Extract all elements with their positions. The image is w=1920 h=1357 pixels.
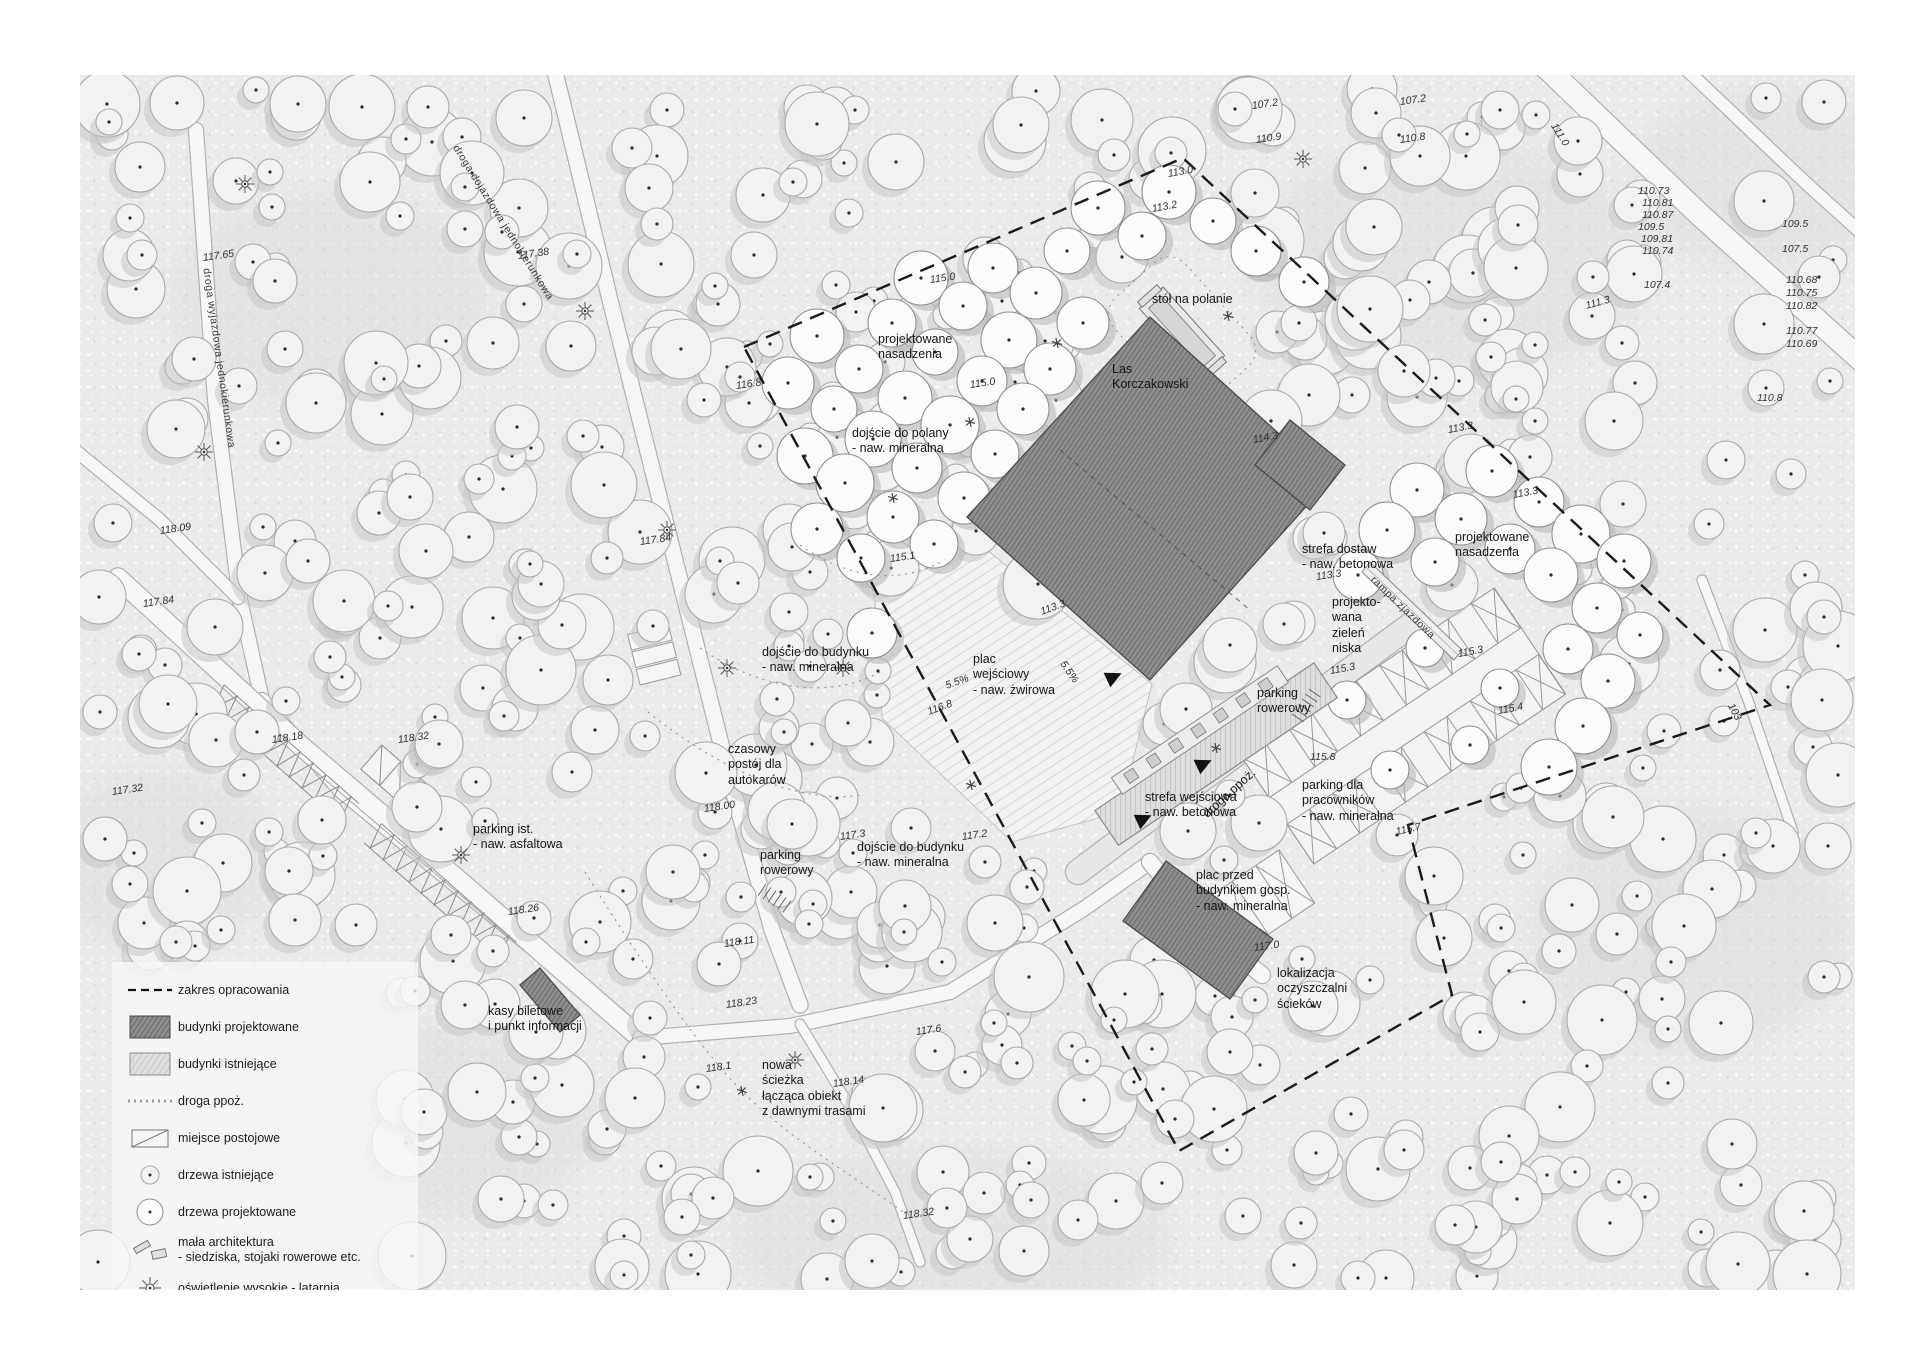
elevation-label: 103 [1724,701,1744,722]
legend-item-label: miejsce postojowe [178,1131,280,1146]
elevation-label: 117.65 [202,248,235,265]
annotation-label: projektowane nasadzenia [878,332,952,363]
elevation-label: 111.0 [1548,121,1572,149]
annotation-label: parking rowerowy [760,848,814,879]
elevation-label: 118.1 [705,1060,732,1076]
elevation-label: 110.82 [1786,300,1817,313]
annotation-label: droga wyjazdowa jednokierunkowa [200,268,238,449]
elevation-label: 115.3 [1457,644,1484,661]
annotation-label: plac przed budynkiem gosp. - naw. minera… [1196,868,1291,914]
elevation-label: 115.0 [929,271,956,287]
elevation-label: 107.2 [1251,96,1279,112]
legend: zakres opracowaniabudynki projektowanebu… [112,962,418,1290]
elevation-label: 109.5 [1782,218,1808,231]
street-furniture-icon [126,1236,178,1264]
annotation-label: strefa dostaw - naw. betonowa [1302,542,1393,573]
annotation-label: dojście do budynku - naw. mineralna [857,840,964,871]
legend-item: drzewa projektowane [126,1198,404,1226]
annotation-label: plac wejściowy - naw. żwirowa [973,652,1055,698]
annotation-label: stół na polanie [1152,292,1233,307]
boundary-dashed-line-icon [126,976,178,1004]
elevation-label: 114.3 [1252,430,1279,447]
fire-road-line-icon [126,1087,178,1115]
elevation-label: 110.73 [1638,185,1669,198]
annotation-label: projekto- wana zieleń niska [1332,595,1381,656]
elevation-label: 115.1 [889,550,916,566]
elevation-label: 110.77 [1786,325,1817,338]
annotation-label: kasy biletowe i punkt informacji [488,1004,582,1035]
elevation-label: 118.18 [271,730,304,747]
elevation-label: 107.2 [1399,92,1427,108]
elevation-label: 118.32 [902,1206,935,1223]
elevation-label: 110.75 [1786,287,1817,300]
annotation-label: parking dla pracowników - naw. mineralna [1302,778,1394,824]
elevation-label: 113.3 [1512,485,1539,502]
elevation-label: 117.84 [142,594,175,611]
elevation-label: 113.3 [1039,598,1067,619]
annotation-label: nowa ścieżka łącząca obiekt z dawnymi tr… [762,1058,866,1119]
elevation-label: 110.87 [1642,209,1673,222]
elevation-label: 113.3 [1447,420,1474,437]
elevation-label: 107.4 [1644,279,1670,292]
legend-item: budynki projektowane [126,1013,404,1041]
annotation-label: lokalizacja oczyszczalni ścieków [1277,966,1347,1012]
elevation-label: 113.0 [1167,164,1194,181]
elevation-label: 117.32 [111,782,144,799]
elevation-label: 118.32 [397,730,430,747]
elevation-label: 107.5 [1782,243,1808,256]
elevation-label: 117.2 [961,828,988,844]
elevation-label: 116.8 [926,698,954,719]
elevation-label: 5.5% [1057,659,1081,686]
elevation-label: 115.8 [1310,751,1336,764]
legend-item: miejsce postojowe [126,1124,404,1152]
annotation-label: projektowane nasadzenia [1455,530,1529,561]
annotation-label: dojście do budynku - naw. mineralna [762,645,869,676]
legend-item: droga ppoż. [126,1087,404,1115]
legend-item: zakres opracowania [126,976,404,1004]
annotation-label: parking rowerowy [1257,686,1311,717]
elevation-label: 118.26 [507,902,540,919]
elevation-label: 109.5 [1638,221,1664,234]
elevation-label: 110.74 [1642,245,1673,258]
legend-item-label: drzewa istniejące [178,1168,274,1183]
legend-item-label: zakres opracowania [178,983,289,998]
elevation-label: 117.6 [915,1023,942,1039]
elevation-label: 115.7 [1395,821,1423,839]
elevation-label: 117.0 [1253,939,1280,955]
elevation-label: 115.0 [969,376,996,392]
legend-item-label: droga ppoż. [178,1094,244,1109]
elevation-label: 115.4 [1497,701,1524,718]
elevation-label: 117.38 [517,246,550,263]
elevation-label: 111.3 [1584,294,1611,313]
elevation-label: 118.00 [703,799,736,816]
legend-item: drzewa istniejące [126,1161,404,1189]
annotation-label: droga dojazdowa jednokierunkowa [450,143,556,303]
elevation-label: 110.69 [1786,338,1817,351]
parking-space-icon [126,1124,178,1152]
elevation-label: 117.84 [639,532,672,549]
legend-item-label: oświetlenie wysokie - latarnia [178,1281,340,1291]
elevation-label: 5.5% [944,672,971,692]
annotation-label: parking ist. - naw. asfaltowa [473,822,563,853]
elevation-label: 113.3 [1315,568,1342,584]
legend-item-label: mała architektura - siedziska, stojaki r… [178,1235,361,1265]
proposed-building-swatch-icon [126,1013,178,1041]
elevation-label: 118.09 [159,521,192,538]
annotation-label: dojście do polany - naw. mineralna [852,426,949,457]
existing-tree-icon [126,1161,178,1189]
legend-item: mała architektura - siedziska, stojaki r… [126,1235,404,1265]
annotation-label: czasowy postój dla autokarów [728,742,786,788]
proposed-tree-icon [126,1198,178,1226]
existing-building-swatch-icon [126,1050,178,1078]
elevation-label: 115.3 [1329,661,1356,678]
annotation-label: Las Korczakowski [1112,362,1188,393]
elevation-label: 110.68 [1786,274,1817,287]
elevation-label: 110.8 [1399,131,1426,147]
elevation-label: 113.2 [1151,199,1178,216]
elevation-label: 116.8 [735,377,762,393]
legend-item-label: budynki istniejące [178,1057,277,1072]
legend-item-label: drzewa projektowane [178,1205,296,1220]
elevation-label: 110.8 [1757,392,1783,405]
elevation-label: 109.81 [1641,233,1673,246]
high-lighting-icon [126,1274,178,1290]
elevation-label: 118.23 [725,995,758,1012]
legend-item: budynki istniejące [126,1050,404,1078]
legend-item-label: budynki projektowane [178,1020,299,1035]
elevation-label: 118.11 [723,934,755,951]
elevation-label: 110.81 [1642,197,1673,210]
elevation-label: 110.9 [1255,131,1282,147]
site-plan-sheet: droga dojazdowa jednokierunkowadroga wyj… [80,75,1855,1290]
legend-item: oświetlenie wysokie - latarnia [126,1274,404,1290]
